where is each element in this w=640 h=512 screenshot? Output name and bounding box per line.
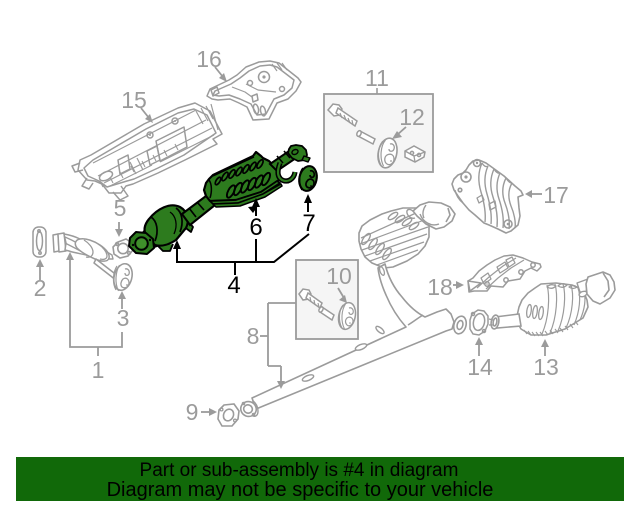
svg-text:3: 3 [117, 305, 130, 331]
svg-text:4: 4 [227, 272, 240, 299]
svg-text:6: 6 [249, 214, 262, 241]
svg-text:Diagram may not be specific to: Diagram may not be specific to your vehi… [107, 479, 494, 501]
svg-text:14: 14 [467, 354, 493, 380]
svg-text:18: 18 [427, 274, 453, 300]
svg-text:16: 16 [196, 46, 222, 72]
svg-text:Part or sub-assembly is #4 in: Part or sub-assembly is #4 in diagram [140, 460, 459, 481]
svg-text:17: 17 [543, 182, 569, 208]
svg-text:1: 1 [92, 357, 105, 383]
svg-text:7: 7 [302, 210, 315, 237]
svg-text:8: 8 [247, 323, 260, 349]
svg-text:11: 11 [365, 65, 389, 91]
svg-text:10: 10 [326, 263, 352, 289]
svg-text:5: 5 [114, 195, 127, 221]
svg-text:12: 12 [399, 104, 425, 130]
svg-text:9: 9 [186, 399, 199, 425]
svg-text:13: 13 [533, 354, 559, 380]
